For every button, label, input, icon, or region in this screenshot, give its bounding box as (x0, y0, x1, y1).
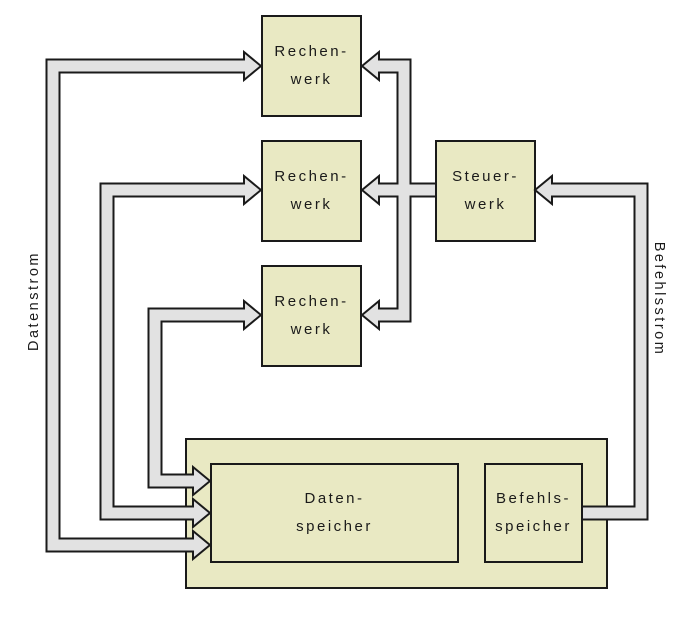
control-pipe-branch-fill (375, 66, 404, 315)
rechenwerk-1-box: Rechen- werk (261, 15, 362, 117)
rechenwerk-3-label-line2: werk (291, 316, 333, 344)
befehlsspeicher-label-line1: Befehls- (496, 485, 571, 513)
arrowhead-control-into-rechenwerk-1-icon (362, 52, 379, 80)
befehlsspeicher-box: Befehls- speicher (484, 463, 583, 563)
rechenwerk-2-box: Rechen- werk (261, 140, 362, 242)
rechenwerk-2-label-line2: werk (291, 191, 333, 219)
arrowhead-data-into-rechenwerk-2-icon (244, 176, 261, 204)
rechenwerk-1-label-line2: werk (291, 66, 333, 94)
rechenwerk-2-label-line1: Rechen- (274, 163, 348, 191)
arrowhead-data-into-rechenwerk-3-icon (244, 301, 261, 329)
diagram-canvas: Rechen- werk Rechen- werk Rechen- werk S… (0, 0, 693, 620)
steuerwerk-box: Steuer- werk (435, 140, 536, 242)
control-pipe-branch-outline (379, 66, 404, 315)
rechenwerk-3-box: Rechen- werk (261, 265, 362, 367)
befehlsstrom-label: Befehlsstrom (647, 219, 667, 379)
arrowhead-data-into-rechenwerk-1-icon (244, 52, 261, 80)
rechenwerk-3-label-line1: Rechen- (274, 288, 348, 316)
datenspeicher-label-line1: Daten- (304, 485, 364, 513)
rechenwerk-1-label-line1: Rechen- (274, 38, 348, 66)
arrowhead-instruction-into-steuerwerk-icon (535, 176, 552, 204)
arrowhead-control-into-rechenwerk-3-icon (362, 301, 379, 329)
steuerwerk-label-line1: Steuer- (452, 163, 519, 191)
arrowhead-control-into-rechenwerk-2-icon (362, 176, 379, 204)
befehlsspeicher-label-line2: speicher (495, 513, 572, 541)
datenstrom-label: Datenstrom (26, 221, 46, 381)
datenspeicher-label-line2: speicher (296, 513, 373, 541)
steuerwerk-label-line2: werk (465, 191, 507, 219)
datenspeicher-box: Daten- speicher (210, 463, 459, 563)
